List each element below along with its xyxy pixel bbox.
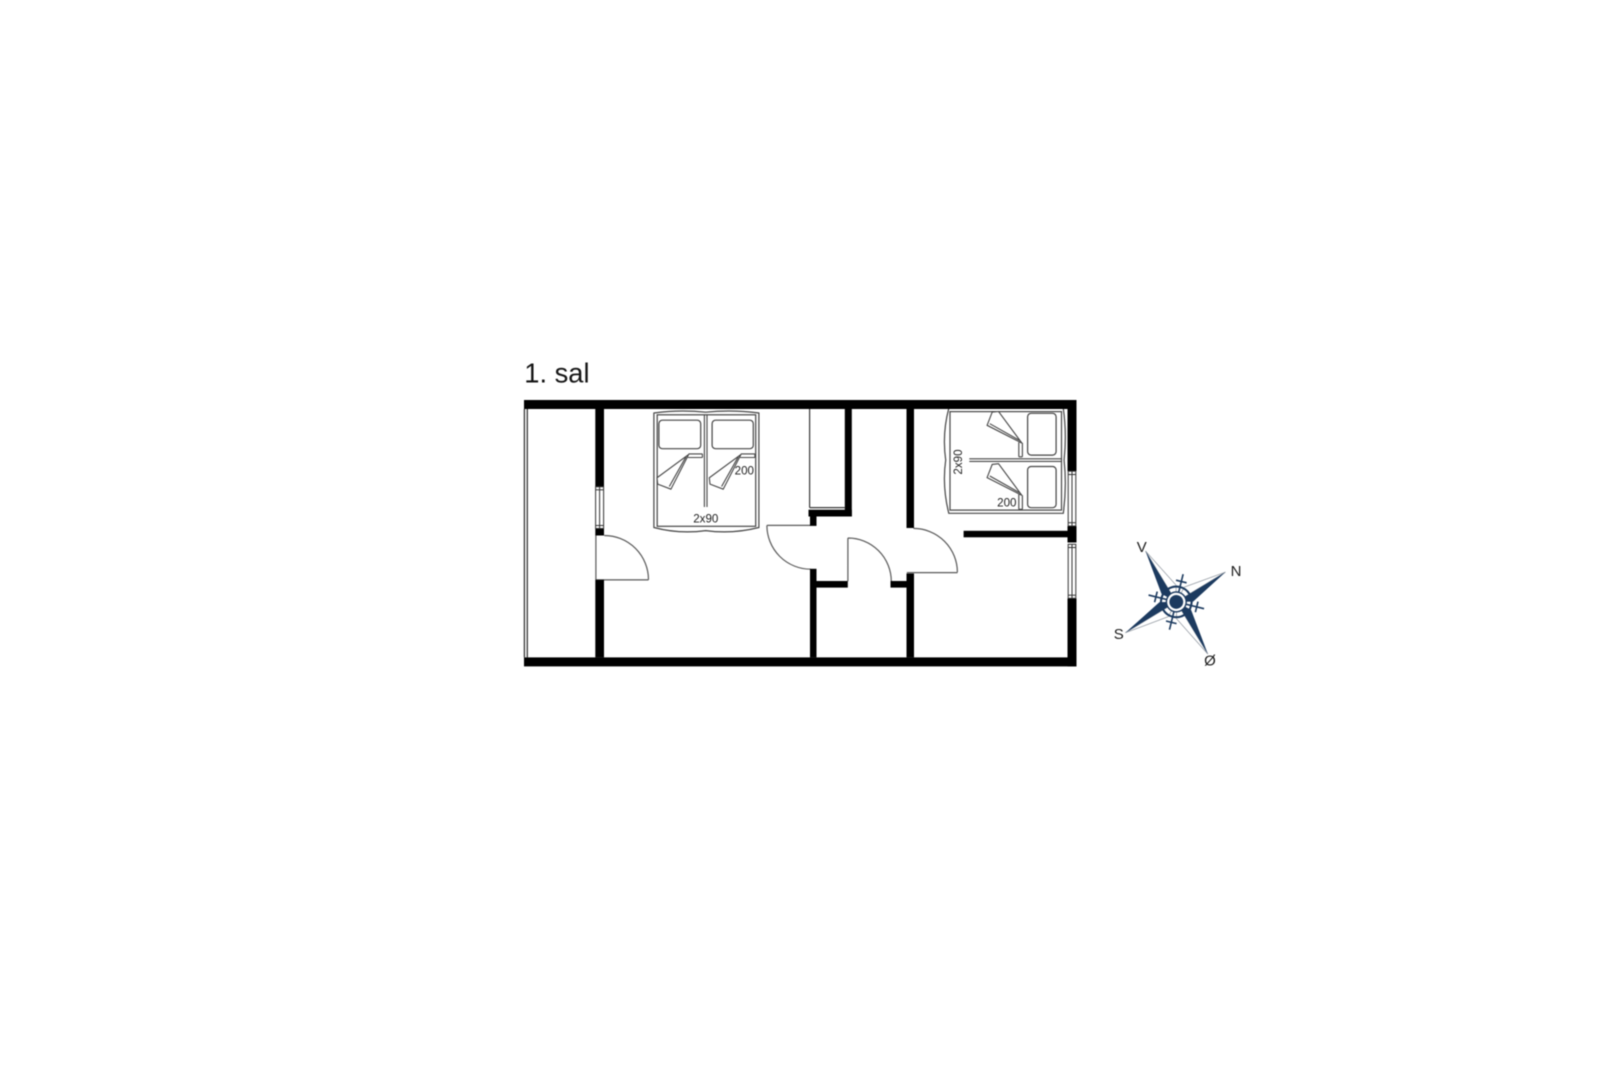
svg-text:Ø: Ø — [1204, 653, 1216, 670]
svg-text:S: S — [1114, 626, 1124, 643]
svg-text:2x90: 2x90 — [693, 513, 718, 526]
svg-text:200: 200 — [735, 464, 754, 477]
svg-text:1. sal: 1. sal — [524, 358, 589, 389]
svg-text:200: 200 — [997, 497, 1016, 510]
svg-text:2x90: 2x90 — [952, 449, 965, 474]
svg-text:N: N — [1231, 563, 1242, 580]
svg-text:V: V — [1137, 539, 1147, 556]
